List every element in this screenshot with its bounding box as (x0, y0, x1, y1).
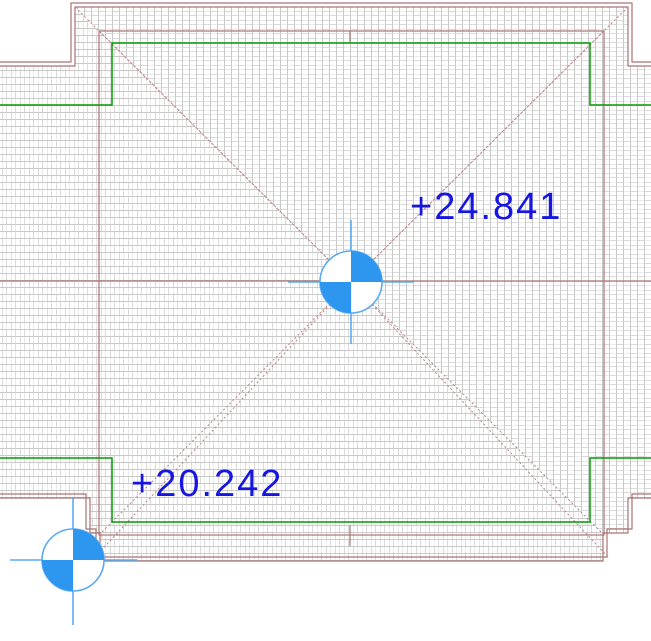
roof-plan-drawing: +24.841 +20.242 (0, 0, 651, 641)
elevation-label-lower[interactable]: +20.242 (131, 463, 283, 505)
elevation-label-upper[interactable]: +24.841 (410, 186, 562, 228)
cad-canvas: +24.841 +20.242 (0, 0, 651, 641)
symbol-quadrant-bottom-left (42, 560, 73, 591)
